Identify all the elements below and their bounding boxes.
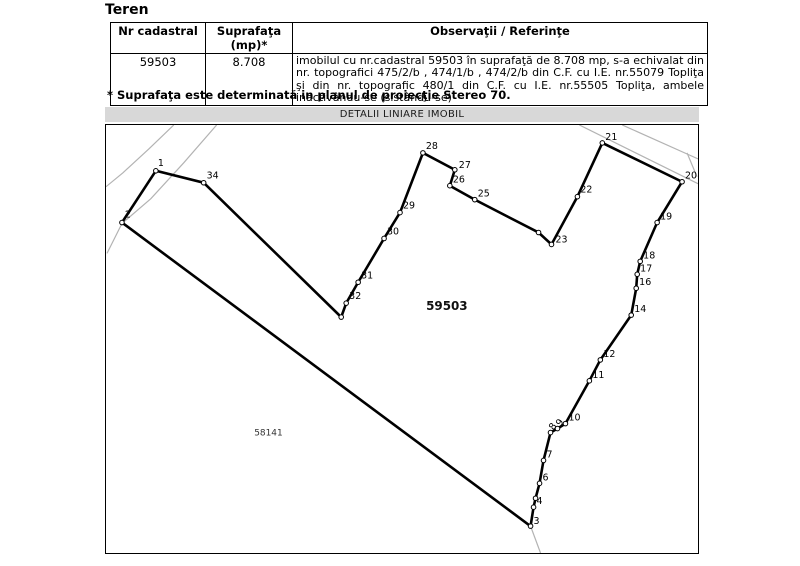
vertex-point-29: [398, 210, 403, 215]
vertex-label-32: 32: [349, 291, 361, 302]
vertex-point-19: [655, 220, 660, 225]
header-suprafata: Suprafaţa (mp)*: [206, 23, 293, 54]
vertex-label-18: 18: [643, 250, 655, 261]
vertex-point-1: [154, 168, 159, 173]
vertex-label-16: 16: [639, 277, 651, 288]
vertex-label-28: 28: [426, 141, 438, 152]
road-line-0: [106, 125, 174, 187]
vertex-point-14: [629, 313, 634, 318]
vertex-point-21: [600, 141, 605, 146]
vertex-label-26: 26: [453, 175, 465, 186]
parcel-number-label: 59503: [426, 299, 468, 313]
vertex-label-34: 34: [207, 171, 219, 182]
vertex-point-11: [587, 379, 592, 384]
vertex-point-12: [598, 358, 603, 363]
table-header-row: Nr cadastral Suprafaţa (mp)* Observaţii …: [111, 23, 708, 54]
vertex-label-30: 30: [387, 226, 399, 237]
vertex-label-22: 22: [580, 185, 592, 196]
vertex-point-4: [531, 505, 536, 510]
vertex-label-21: 21: [605, 132, 617, 143]
vertex-point-2: [120, 220, 125, 225]
vertex-point-17: [635, 272, 640, 277]
vertex-label-27: 27: [459, 160, 471, 171]
page-title: Teren: [105, 2, 149, 18]
vertex-point-6: [537, 481, 542, 486]
header-observatii: Observaţii / Referinţe: [293, 23, 708, 54]
cadastral-svg: 1234678910111214161718192021222325262728…: [106, 125, 698, 553]
vertex-label-23: 23: [555, 234, 567, 245]
vertex-label-25: 25: [478, 189, 490, 200]
map-title: DETALII LINIARE IMOBIL: [340, 109, 465, 120]
vertex-point-8: [548, 430, 553, 435]
vertex-point-34: [201, 180, 206, 185]
vertex-point-30: [382, 236, 387, 241]
vertex-point-32: [344, 301, 349, 306]
vertex-label-31: 31: [361, 270, 373, 281]
vertex-point-16: [634, 286, 639, 291]
map-area: 1234678910111214161718192021222325262728…: [105, 124, 699, 554]
vertex-label-20: 20: [685, 171, 697, 182]
vertex-label-10: 10: [568, 413, 580, 424]
vertex-point-27: [453, 168, 458, 173]
vertex-point-33: [339, 315, 344, 320]
vertex-point-25: [472, 197, 477, 202]
parcel-boundary: [122, 143, 682, 526]
vertex-label-14: 14: [634, 304, 646, 315]
road-line-3: [622, 125, 698, 159]
vertex-point-23: [549, 242, 554, 247]
vertex-point-3: [528, 524, 533, 529]
vertex-point-26: [448, 183, 453, 188]
vertex-point-24: [536, 230, 541, 235]
vertex-point-22: [575, 194, 580, 199]
vertex-label-2: 2: [125, 210, 131, 221]
vertex-label-12: 12: [603, 349, 615, 360]
header-nr-cadastral: Nr cadastral: [111, 23, 206, 54]
vertex-label-3: 3: [534, 516, 540, 527]
road-line-1: [107, 125, 217, 253]
vertex-label-7: 7: [547, 449, 553, 460]
vertex-point-7: [541, 458, 546, 463]
vertex-label-29: 29: [403, 201, 415, 212]
vertex-label-17: 17: [640, 263, 652, 274]
vertex-point-20: [680, 179, 685, 184]
vertex-label-6: 6: [543, 472, 549, 483]
footnote: * Suprafaţa este determinată in planul d…: [107, 88, 511, 102]
vertex-label-11: 11: [592, 370, 604, 381]
vertex-point-31: [356, 280, 361, 285]
road-line-5: [531, 526, 541, 553]
vertex-point-28: [421, 151, 426, 156]
map-title-bar: DETALII LINIARE IMOBIL: [105, 107, 699, 122]
neighbor-parcel-label: 58141: [254, 429, 283, 439]
vertex-label-1: 1: [158, 158, 164, 169]
vertex-label-19: 19: [660, 212, 672, 223]
vertex-label-4: 4: [537, 496, 543, 507]
